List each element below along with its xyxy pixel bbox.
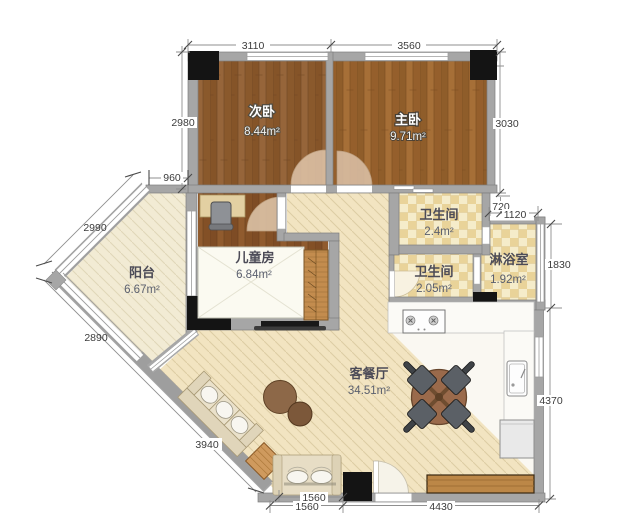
svg-text:8.44m²: 8.44m² (244, 126, 280, 138)
svg-text:4430: 4430 (429, 501, 453, 513)
svg-text:淋浴室: 淋浴室 (489, 252, 528, 267)
svg-text:2.05m²: 2.05m² (416, 283, 452, 295)
svg-text:儿童房: 儿童房 (234, 250, 274, 265)
svg-text:1.92m²: 1.92m² (490, 274, 526, 286)
svg-text:主卧: 主卧 (395, 112, 421, 127)
svg-text:34.51m²: 34.51m² (348, 385, 390, 397)
svg-text:1830: 1830 (547, 259, 571, 271)
svg-text:6.67m²: 6.67m² (124, 284, 160, 296)
svg-text:客餐厅: 客餐厅 (349, 366, 388, 381)
svg-text:3030: 3030 (495, 118, 519, 130)
svg-text:2.4m²: 2.4m² (424, 226, 454, 238)
svg-text:2990: 2990 (83, 222, 107, 234)
svg-text:1560: 1560 (295, 501, 319, 513)
svg-text:卫生间: 卫生间 (419, 207, 458, 222)
svg-text:阳台: 阳台 (129, 265, 155, 280)
svg-text:次卧: 次卧 (249, 104, 275, 119)
svg-text:3560: 3560 (397, 40, 421, 52)
svg-text:3940: 3940 (195, 439, 219, 451)
svg-text:卫生间: 卫生间 (414, 264, 453, 279)
svg-text:1120: 1120 (504, 209, 527, 221)
svg-text:6.84m²: 6.84m² (236, 269, 272, 281)
svg-text:4370: 4370 (539, 395, 563, 407)
svg-text:2890: 2890 (84, 332, 108, 344)
svg-text:3110: 3110 (242, 40, 265, 52)
svg-text:2980: 2980 (171, 117, 195, 129)
svg-text:9.71m²: 9.71m² (390, 131, 426, 143)
svg-text:960: 960 (163, 172, 181, 184)
